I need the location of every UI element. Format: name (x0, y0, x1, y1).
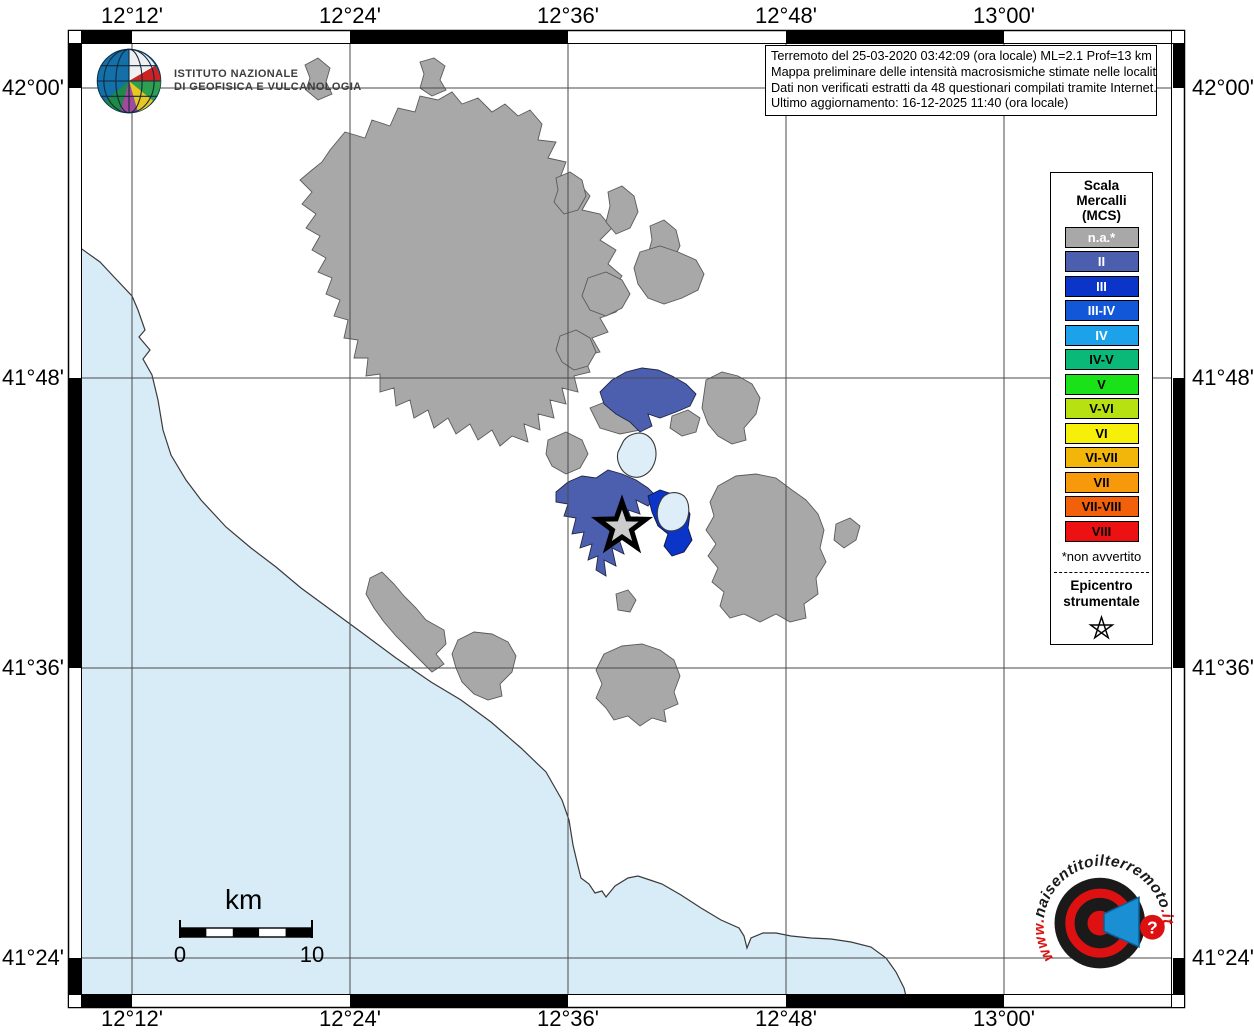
mcs-legend: Scala Mercalli (MCS) n.a.* II III III-IV… (1050, 172, 1153, 645)
lon-label-bottom-5: 13°00' (973, 1006, 1035, 1032)
legend-swatch-vii: VII (1065, 472, 1139, 493)
lon-label-top-4: 12°48' (755, 3, 817, 29)
legend-swatch-na: n.a.* (1065, 227, 1139, 248)
legend-epicenter-line2: strumentale (1051, 594, 1152, 610)
lat-label-right-3: 41°36' (1192, 655, 1254, 681)
ingv-logo: ISTITUTO NAZIONALE DI GEOFISICA E VULCAN… (92, 46, 362, 116)
lon-label-top-2: 12°24' (319, 3, 381, 29)
lat-label-left-3: 41°36' (2, 655, 64, 681)
lon-label-top-5: 13°00' (973, 3, 1035, 29)
question-mark: ? (1147, 917, 1158, 937)
legend-swatch-v: V (1065, 374, 1139, 395)
lon-label-bottom-1: 12°12' (101, 1006, 163, 1032)
scalebar-unit-label: km (225, 884, 262, 916)
map-area (75, 43, 1172, 1000)
info-line-data: Dati non verificati estratti da 48 quest… (771, 81, 1151, 97)
legend-swatch-iv: IV (1065, 325, 1139, 346)
info-line-map: Mappa preliminare delle intensità macros… (771, 65, 1151, 81)
scalebar-end-label: 10 (300, 942, 324, 968)
ingv-shakemap-page: { "info_box": { "line1": "Terremoto del … (0, 0, 1254, 1024)
lat-label-right-1: 42°00' (1192, 75, 1254, 101)
lon-label-top-3: 12°36' (537, 3, 599, 29)
legend-separator (1054, 572, 1149, 573)
lat-label-left-2: 41°48' (2, 365, 64, 391)
legend-swatch-v-vi: V-VI (1065, 398, 1139, 419)
haisentito-logo: ? www.haisentitoilterremoto.it (1036, 851, 1174, 989)
legend-title-line1: Scala (1051, 178, 1152, 193)
legend-swatch-iii-iv: III-IV (1065, 300, 1139, 321)
lat-label-left-1: 42°00' (2, 75, 64, 101)
legend-swatch-ii: II (1065, 251, 1139, 272)
legend-swatch-vii-viii: VII-VIII (1065, 496, 1139, 517)
lat-label-right-2: 41°48' (1192, 365, 1254, 391)
legend-epicenter-line1: Epicentro (1051, 578, 1152, 594)
info-line-updated: Ultimo aggiornamento: 16-12-2025 11:40 (… (771, 96, 1151, 112)
scalebar (172, 918, 320, 942)
legend-swatch-iii: III (1065, 276, 1139, 297)
lat-label-right-4: 41°24' (1192, 945, 1254, 971)
legend-title-line3: (MCS) (1051, 208, 1152, 223)
legend-star-icon (1088, 614, 1115, 641)
legend-swatch-iv-v: IV-V (1065, 349, 1139, 370)
lat-label-left-4: 41°24' (2, 945, 64, 971)
lon-label-top-1: 12°12' (101, 3, 163, 29)
legend-swatch-viii: VIII (1065, 521, 1139, 542)
info-line-event: Terremoto del 25-03-2020 03:42:09 (ora l… (771, 49, 1151, 65)
lake-nemi (657, 493, 688, 531)
scalebar-start-label: 0 (174, 942, 186, 968)
lon-label-bottom-2: 12°24' (319, 1006, 381, 1032)
legend-swatch-vi: VI (1065, 423, 1139, 444)
ingv-name-line2: DI GEOFISICA E VULCANOLOGIA (174, 81, 362, 94)
legend-footnote: *non avvertito (1051, 549, 1152, 564)
lon-label-bottom-3: 12°36' (537, 1006, 599, 1032)
lon-label-bottom-4: 12°48' (755, 1006, 817, 1032)
legend-swatch-vi-vii: VI-VII (1065, 447, 1139, 468)
legend-title-line2: Mercalli (1051, 193, 1152, 208)
ingv-name-line1: ISTITUTO NAZIONALE (174, 68, 362, 81)
earthquake-info-box: Terremoto del 25-03-2020 03:42:09 (ora l… (765, 45, 1157, 116)
ingv-globe-icon (92, 46, 166, 116)
